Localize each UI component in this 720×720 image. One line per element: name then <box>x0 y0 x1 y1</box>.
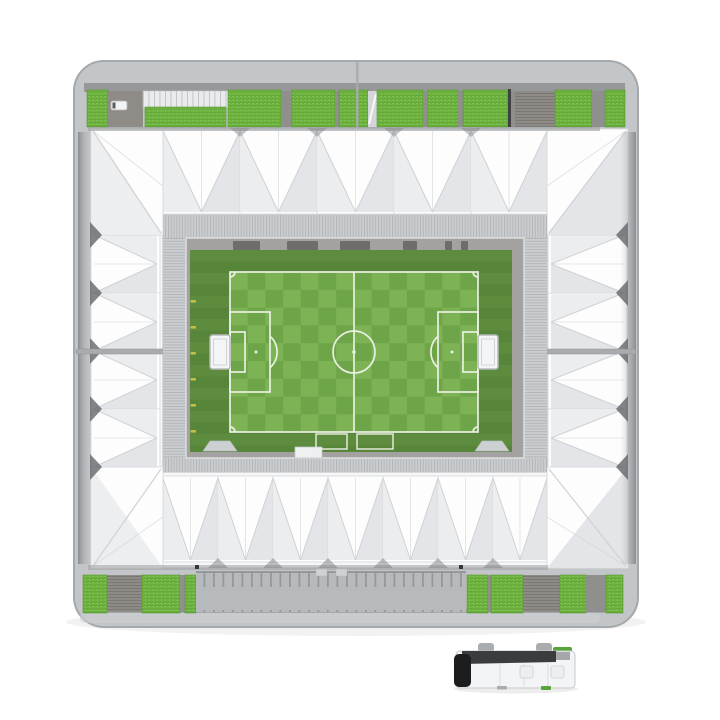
dugout-box <box>403 241 417 250</box>
roof-panel-north <box>317 129 394 214</box>
roof-panel-west <box>91 293 160 351</box>
center-spot <box>352 350 356 354</box>
bus-roof-hatch <box>551 666 564 678</box>
roof-panel-south <box>438 476 493 562</box>
yellow-stair-mark <box>191 404 197 407</box>
roof-panel-north <box>471 129 547 214</box>
roof-panel-east <box>548 235 627 293</box>
stand-section-green <box>142 575 180 613</box>
stand-aisle <box>488 575 491 612</box>
dugout-box <box>233 241 260 250</box>
stand-section-green <box>428 90 458 127</box>
bus-window-band <box>462 651 556 664</box>
bus-roof-hatch <box>520 666 533 678</box>
product-photo <box>0 0 720 720</box>
dugout-box <box>340 241 370 250</box>
south-gate-tab-right <box>336 569 347 576</box>
stand-aisle <box>180 575 185 612</box>
roof-corner-southwest <box>91 467 163 568</box>
stand-stairs <box>523 575 560 612</box>
base-bottom-rim <box>80 612 600 623</box>
bus-door-step <box>497 686 507 690</box>
roof-panel-west <box>91 235 160 293</box>
stand-aisle <box>458 91 463 127</box>
stand-section-green <box>491 575 523 613</box>
roof-panel-north <box>240 129 317 214</box>
stand-seam <box>508 89 511 127</box>
stand-section-green <box>83 575 107 613</box>
roof-anchor-dot-left <box>195 565 199 569</box>
concourse-east <box>524 238 547 458</box>
yellow-stair-mark <box>191 300 197 303</box>
dugout-box <box>287 241 318 250</box>
stand-section-green <box>606 575 623 613</box>
service-vehicle <box>111 101 127 110</box>
stand-section-green <box>560 575 586 613</box>
stand-section-green <box>292 90 335 127</box>
stand-deck-railing <box>143 91 228 108</box>
concourse-north <box>163 215 547 238</box>
stand-aisle <box>592 91 605 127</box>
stand-section-green <box>228 90 281 127</box>
roof-panel-south <box>273 476 328 562</box>
stand-aisle <box>281 91 292 127</box>
stand-section-green <box>555 90 592 127</box>
band-edge-line <box>196 571 466 573</box>
penalty-spot-right <box>451 351 454 354</box>
concourse-south <box>163 458 547 472</box>
stand-stairs <box>515 91 555 127</box>
goal-right <box>478 335 498 369</box>
roof-panel-west <box>91 351 160 409</box>
yellow-stair-mark <box>191 378 197 381</box>
roof-panel-south <box>493 476 547 562</box>
south-concourse-band <box>196 572 466 612</box>
bus-rear-roof <box>556 652 570 660</box>
roof-corner-northeast <box>547 129 628 235</box>
stand-terrace-green <box>145 107 226 127</box>
roof-panel-west <box>91 409 160 467</box>
dugout-box <box>461 241 468 250</box>
south-stands <box>83 571 623 613</box>
stand-section-green <box>467 575 488 613</box>
stand-section-green <box>605 90 625 127</box>
bus-windshield <box>454 654 471 687</box>
yellow-stair-mark <box>191 352 197 355</box>
penalty-spot-left <box>255 351 258 354</box>
roof-panel-south <box>163 476 218 562</box>
west-eave-shadow <box>78 132 92 564</box>
team-bus <box>454 643 578 694</box>
bus-rear-green-tab <box>541 686 551 690</box>
south-gate-tab-left <box>316 569 327 576</box>
roof-anchor-dot-right <box>459 565 463 569</box>
roof-panel-south <box>328 476 383 562</box>
stand-aisle <box>511 91 515 127</box>
north-eave-shadow <box>88 127 600 131</box>
stand-aisle <box>335 91 339 127</box>
stand-aisle <box>423 91 428 127</box>
stand-section-green <box>87 90 108 127</box>
roof-panel-north <box>163 129 240 214</box>
stand-section-green <box>339 90 368 127</box>
stand-aisle <box>586 575 606 612</box>
dugout-box <box>445 241 452 250</box>
roof-corner-northwest <box>91 129 163 235</box>
roof-panel-south <box>383 476 438 562</box>
stand-section-green <box>377 90 423 127</box>
roof-corner-southeast <box>547 467 628 568</box>
yellow-stair-mark <box>191 430 197 433</box>
stand-section-green <box>185 575 196 613</box>
roof-panel-south <box>218 476 273 562</box>
model-seam-north <box>356 62 359 128</box>
roof-panel-east <box>548 409 627 467</box>
stand-section-green <box>463 90 508 127</box>
roof-panel-north <box>394 129 471 214</box>
yellow-stair-mark <box>191 326 197 329</box>
stadium-scene <box>0 0 720 720</box>
stand-stairs <box>107 575 142 612</box>
concourse-west <box>163 238 186 458</box>
roof-panel-east <box>548 351 627 409</box>
roof-panel-east <box>548 293 627 351</box>
goal-left <box>210 335 230 369</box>
